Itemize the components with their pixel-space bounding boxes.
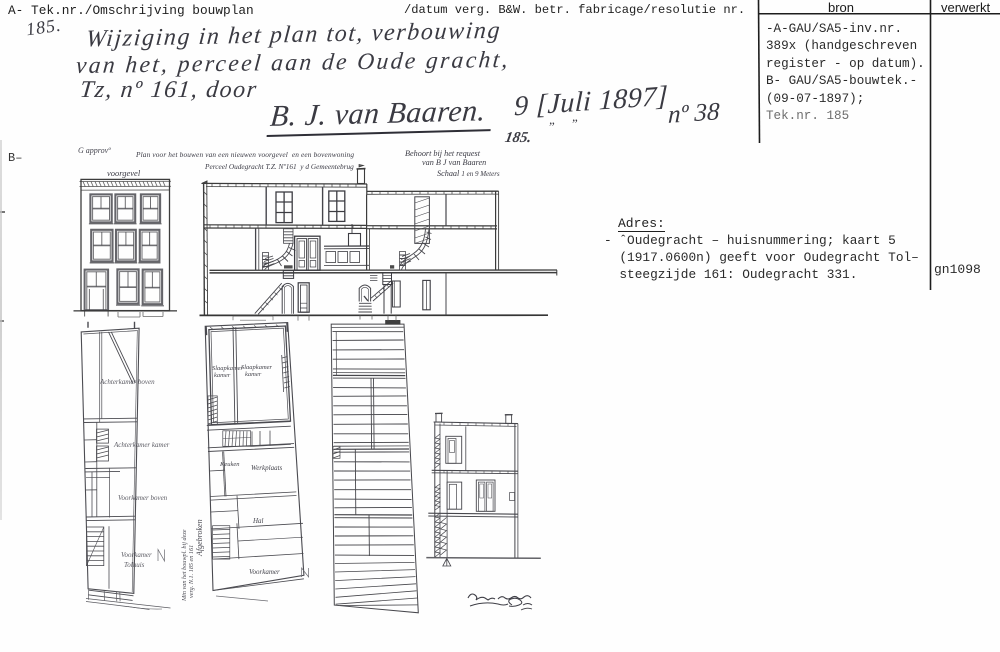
svg-text:Hal: Hal [252, 517, 264, 525]
svg-text:Tolhuis: Tolhuis [124, 561, 145, 569]
svg-text:Achterkamer kamer: Achterkamer kamer [113, 441, 170, 449]
svg-text:verg. N.1. 185 en 161: verg. N.1. 185 en 161 [188, 545, 195, 598]
svg-text:Min van het bouwpl. bij deze: Min van het bouwpl. bij deze [181, 529, 188, 602]
svg-text:Voorkamer boven: Voorkamer boven [118, 494, 168, 502]
svg-text:kamer: kamer [214, 372, 231, 379]
svg-text:Keuken: Keuken [219, 461, 240, 468]
svg-text:Afgebroken: Afgebroken [195, 519, 204, 557]
svg-text:Slaapkamer: Slaapkamer [241, 364, 273, 371]
svg-text:kamer: kamer [245, 371, 262, 378]
svg-text:Voorkamer: Voorkamer [249, 568, 280, 576]
svg-text:Slaapkamer: Slaapkamer [212, 365, 244, 372]
svg-text:Werkplaats: Werkplaats [251, 464, 283, 472]
svg-text:Voorkamer: Voorkamer [121, 551, 152, 559]
svg-text:Achterkamer boven: Achterkamer boven [99, 378, 155, 386]
